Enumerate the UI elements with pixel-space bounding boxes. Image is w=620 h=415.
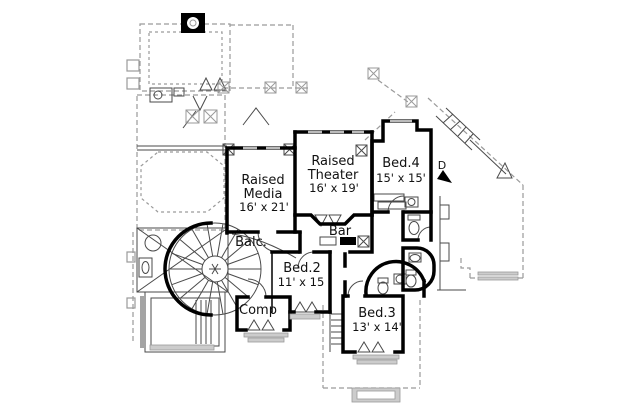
roof-ridge-3 (365, 112, 395, 140)
label-bar: Bar (329, 224, 352, 239)
label-bed4: Bed.4 (382, 156, 420, 171)
roof-ridge-1 (378, 80, 408, 102)
closet-box-2 (440, 243, 449, 261)
roof-left-box-2 (127, 78, 139, 89)
bath2-toilet (406, 275, 416, 287)
label-balcony: Balc. (235, 235, 267, 250)
sill-bed3-2 (357, 360, 397, 364)
window-comp (248, 320, 274, 330)
roof-left-box-1 (127, 60, 139, 71)
floor-plan-drawing: Raised Media 16' x 21' Raised Theater 16… (0, 0, 620, 415)
sill-bed2 (290, 314, 320, 319)
sill-bay-room (150, 345, 214, 350)
chimney-flue-outer (187, 17, 199, 29)
wall-theater-bay (295, 215, 372, 224)
left-strip-box-2 (127, 298, 135, 308)
door-swing-v (193, 96, 207, 110)
window-gaps (243, 121, 412, 148)
turret-toilet (378, 282, 388, 294)
window-bed3 (358, 342, 384, 352)
back-stair-treads (331, 314, 342, 344)
bath1-toilet-tank (408, 215, 420, 220)
left-strip-box-1 (127, 252, 135, 262)
solid-fills (181, 13, 452, 245)
label-bed4-dims: 15' x 15' (376, 171, 426, 185)
label-bed2-dims: 11' x 15 (278, 275, 325, 289)
sill-comp-1 (244, 333, 288, 337)
bath1-sink (408, 199, 415, 206)
angled-wall (470, 140, 506, 174)
bar-column-x (358, 236, 369, 247)
octagon-ceiling-below (141, 152, 224, 212)
bath2-sink (410, 255, 420, 262)
patio-right-outline (461, 185, 523, 278)
roof-top-left-outer (140, 24, 230, 91)
bay-bed3-inner (357, 391, 395, 399)
floor-plan-page: Raised Media 16' x 21' Raised Theater 16… (0, 0, 620, 415)
closet-box-1 (440, 205, 449, 219)
sill-comp-2 (248, 338, 284, 342)
wall-bath-curved (403, 248, 434, 290)
label-raised-media-dims: 16' x 21' (239, 200, 289, 214)
sill-bed3-1 (353, 355, 399, 359)
bed3-door-arc (348, 281, 363, 296)
label-raised-theater-dims: 16' x 19' (309, 181, 359, 195)
wall-bath-upper (403, 212, 431, 240)
bay-room (145, 292, 225, 352)
bath2-toilet-tank (406, 270, 416, 275)
bath1-toilet (409, 222, 419, 235)
cross-room-sink (142, 262, 149, 274)
roof-top-left-extension (230, 25, 293, 88)
roof-outlines (127, 24, 523, 388)
bath1-door-arc (418, 227, 431, 240)
bay-left-sill (141, 296, 143, 348)
sill-patio-2 (478, 277, 518, 280)
hall-floor-lines (137, 146, 227, 150)
bed4-closet-door-2 (378, 202, 406, 209)
label-stair-down: D (438, 159, 446, 172)
label-bed3-dims: 13' x 14' (352, 320, 402, 334)
label-raised-media-1: Raised (241, 173, 284, 188)
label-bed2: Bed.2 (283, 261, 321, 276)
spiral-center-star (209, 264, 221, 274)
sill-patio-1 (478, 272, 518, 275)
label-bed3: Bed.3 (358, 306, 396, 321)
cross-room-sink-box (139, 258, 152, 277)
label-comp: Comp (239, 303, 277, 318)
bed4-closet-door-1 (374, 194, 404, 201)
corner-door-mark (497, 163, 512, 178)
gable-mark (243, 108, 269, 125)
bed4-door-arc (388, 196, 404, 212)
roof-top-left-inner (149, 32, 222, 84)
label-raised-theater-1: Raised (311, 154, 354, 169)
